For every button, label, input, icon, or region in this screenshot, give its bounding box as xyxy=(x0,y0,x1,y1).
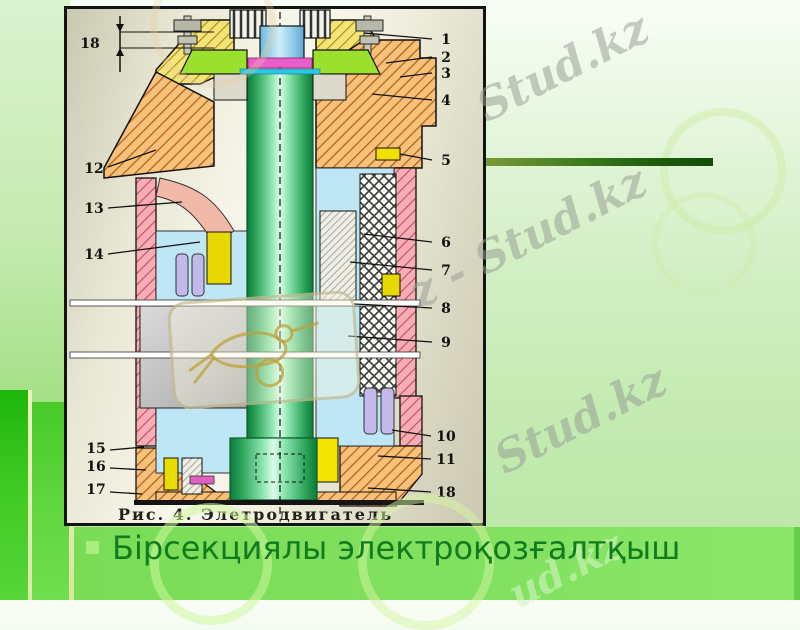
callout-label: 2 xyxy=(441,50,451,66)
callout-label: 13 xyxy=(84,201,103,217)
accent-bar xyxy=(486,158,713,166)
figure-panel: 18 123456789101118121314151617 Рис. 4. Э… xyxy=(64,6,486,526)
callout-label: 5 xyxy=(441,153,451,169)
slide-bullet-text: Бірсекциялы электроқозғалтқыш xyxy=(112,528,680,568)
bullet-square-icon xyxy=(86,541,99,554)
callout-label: 14 xyxy=(84,247,104,263)
callout-label: 1 xyxy=(441,32,451,48)
figure-caption: Рис. 4. Элетродвигатель xyxy=(118,505,393,524)
callout-label: 12 xyxy=(84,161,103,177)
callout-label: 15 xyxy=(86,441,105,457)
callout-label: 16 xyxy=(86,459,105,475)
motor-cross-section-diagram: 18 123456789101118121314151617 Рис. 4. Э… xyxy=(64,6,486,526)
callout-label: 4 xyxy=(441,93,451,109)
callout-label: 6 xyxy=(441,235,451,251)
dimension-label: 18 xyxy=(80,36,99,52)
step-column-outer xyxy=(0,390,28,600)
callout-label: 7 xyxy=(441,263,451,279)
callout-label: 11 xyxy=(436,452,455,468)
watermark-text: Stud.kz xyxy=(487,355,676,485)
watermark-text: Stud.kz xyxy=(469,3,658,133)
callout-label: 9 xyxy=(441,335,451,351)
swirl-ring-icon xyxy=(660,108,786,234)
slide: { "slide": { "bullet": { "label": "Бірсе… xyxy=(0,0,800,600)
callout-label: 10 xyxy=(436,429,456,445)
callout-label: 8 xyxy=(441,301,451,317)
callout-label: 17 xyxy=(86,482,105,498)
callout-label: 3 xyxy=(441,66,451,82)
swirl-ring-icon xyxy=(652,192,756,296)
callout-label: 18 xyxy=(436,485,455,501)
bottom-band-right-edge xyxy=(794,527,800,600)
